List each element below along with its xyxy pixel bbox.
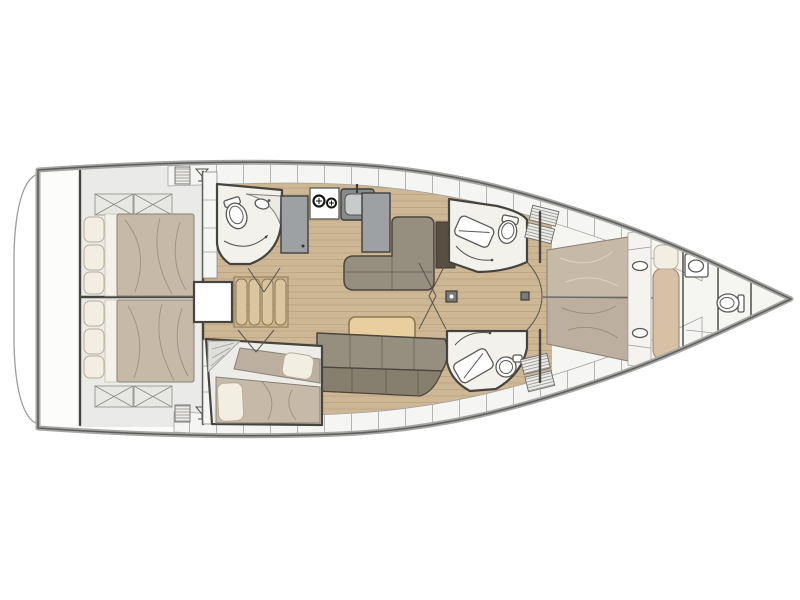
floor-plan-svg — [0, 0, 800, 600]
aft-cabin-port-bed — [84, 214, 194, 296]
deck-hatch — [134, 386, 172, 407]
stove-icon — [310, 188, 339, 219]
berth-pillow — [281, 352, 314, 380]
salon-sofa-starboard — [317, 333, 447, 396]
bedside-shelf — [633, 262, 648, 271]
mast-post-center — [450, 295, 454, 299]
swim-platform — [14, 174, 38, 424]
deck-hatch — [134, 194, 172, 215]
toilet-icon — [717, 294, 744, 312]
galley-counter — [362, 193, 390, 252]
bench-cushion — [654, 245, 678, 269]
door-post — [521, 292, 529, 300]
deck-hatch — [95, 194, 133, 215]
headboard-shelf — [628, 229, 651, 369]
cabin-bench — [653, 268, 679, 360]
yacht-floor-plan — [0, 0, 800, 600]
aft-cabin-starboard-bed — [84, 300, 194, 382]
single-berth-cabin — [206, 339, 322, 425]
berth-pillow — [217, 382, 244, 421]
fridge-unit — [281, 196, 308, 253]
fridge-handle — [302, 245, 305, 248]
bedside-shelf — [633, 329, 648, 338]
engine-box — [194, 282, 232, 322]
deck-hatch — [95, 386, 133, 407]
